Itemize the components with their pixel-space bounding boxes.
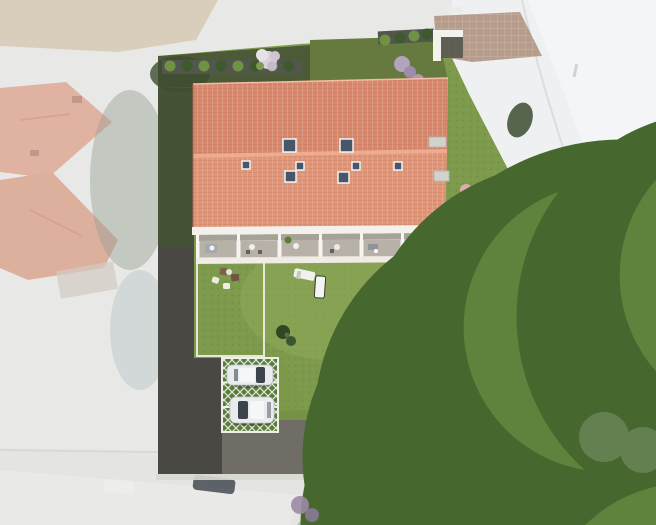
skylight-window: [352, 162, 360, 170]
skylight-window: [285, 171, 296, 182]
parking-area: [222, 358, 278, 432]
skylight-window: [242, 161, 250, 169]
skylight-window: [338, 172, 349, 183]
roof-vent: [434, 171, 449, 181]
sidewalk-strip: [156, 474, 316, 480]
skylight-window: [283, 139, 296, 152]
site-plan-rendering: [0, 0, 656, 525]
photo-road-marking: [103, 479, 134, 495]
roof-vent: [429, 137, 446, 147]
parked-car-1: [227, 365, 273, 388]
flowering-tree-white: [256, 49, 280, 71]
parked-car-2: [230, 397, 274, 426]
skylight-window: [340, 139, 353, 152]
skylight-window: [394, 162, 402, 170]
aerial-canvas: [0, 0, 656, 525]
entrance-court: [441, 37, 463, 58]
entrance-gate: [447, 7, 462, 13]
skylight-window: [296, 162, 304, 170]
